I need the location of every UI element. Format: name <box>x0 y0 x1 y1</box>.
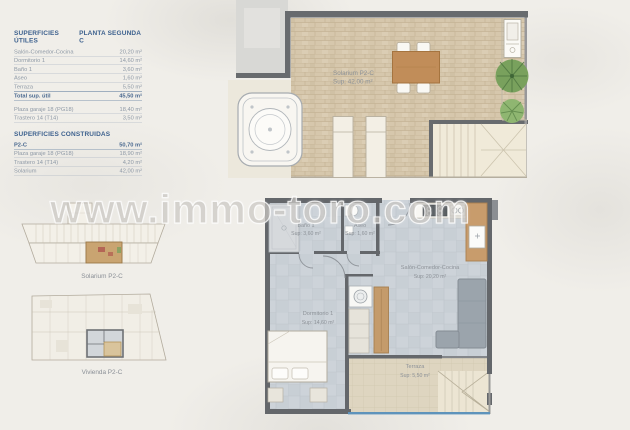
row-value: 42,00 m² <box>120 168 142 174</box>
outdoor-sink-cabinet <box>504 20 521 58</box>
solarium-bottom-edge <box>291 177 527 179</box>
row-label: Plaza garaje 18 (PG18) <box>14 106 74 112</box>
key-plan-solarium: Solarium P2-C <box>13 197 173 287</box>
room-area: Sup: 42,00 m² <box>333 79 373 86</box>
wardrobe <box>374 287 389 353</box>
room-name: Aseo <box>354 223 366 229</box>
washing-machine <box>349 286 372 307</box>
row-value: 50,70 m² <box>119 142 142 148</box>
table-row: Dormitorio 1 14,60 m² <box>14 56 142 65</box>
row-label: Solarium <box>14 168 36 174</box>
room-area: Sup: 1,60 m² <box>345 231 375 237</box>
row-value: 14,60 m² <box>120 58 142 64</box>
neighbor-roof <box>236 0 288 76</box>
row-value: 45,50 m² <box>119 93 142 99</box>
solarium-floor-plan: Solarium P2-C Sup: 42,00 m² <box>225 0 530 186</box>
jacuzzi <box>238 93 302 166</box>
table-row: Baño 1 3,60 m² <box>14 65 142 74</box>
row-value: 5,50 m² <box>123 84 142 90</box>
plant <box>500 99 524 123</box>
table-row: Trastero 14 (T14) 4,20 m² <box>14 158 142 167</box>
utiles-title: SUPERFICIES ÚTILES <box>14 29 79 44</box>
row-label: Baño 1 <box>14 66 32 72</box>
row-label: Salón-Comedor-Cocina <box>14 49 74 55</box>
row-value: 20,20 m² <box>120 49 142 55</box>
row-label: Dormitorio 1 <box>14 58 45 64</box>
surface-tables: SUPERFICIES ÚTILES PLANTA SEGUNDA C Saló… <box>14 29 142 176</box>
room-name: Salón-Comedor-Cocina <box>401 265 460 271</box>
row-value: 4,20 m² <box>123 159 142 165</box>
room-area: Sup: 3,60 m² <box>291 231 321 237</box>
terrace-railing <box>348 412 490 414</box>
row-value: 3,60 m² <box>123 66 142 72</box>
row-label: P2-C <box>14 142 27 148</box>
room-area: Sup: 5,50 m² <box>400 373 430 379</box>
construidas-header: SUPERFICIES CONSTRUIDAS <box>14 130 142 138</box>
sun-lounger <box>366 117 386 178</box>
row-label: Aseo <box>14 75 27 81</box>
table-row: Aseo 1,60 m² <box>14 74 142 83</box>
room-name: Dormitorio 1 <box>303 311 333 317</box>
room-label-solarium: Solarium P2-C Sup: 42,00 m² <box>333 70 374 86</box>
room-area: Sup: 20,20 m² <box>414 274 447 280</box>
row-label: Total sup. útil <box>14 93 51 99</box>
key-plan-label: Vivienda P2-C <box>82 369 123 376</box>
stair-niche-block <box>492 200 498 220</box>
stairs <box>433 124 527 177</box>
table-row: Trastero 14 (T14) 3,50 m² <box>14 114 142 123</box>
row-value: 18,90 m² <box>120 151 142 157</box>
row-label: Plaza garaje 18 (PG18) <box>14 151 74 157</box>
table-row: Terraza 5,50 m² <box>14 83 142 92</box>
sun-lounger <box>333 117 353 178</box>
terrace-right-edge <box>489 374 491 414</box>
highlighted-unit <box>87 330 123 357</box>
row-value: 3,50 m² <box>123 115 142 121</box>
kitchen-tall-units <box>466 203 487 261</box>
floor-plan-sheet: SUPERFICIES ÚTILES PLANTA SEGUNDA C Saló… <box>0 0 630 430</box>
room-area: Sup: 14,60 m² <box>302 320 335 326</box>
terrace-window <box>442 356 487 358</box>
kitchen-counter <box>414 203 466 218</box>
table-row: Plaza garaje 18 (PG18) 18,90 m² <box>14 149 142 158</box>
laundry-cabinet <box>349 309 369 353</box>
table-row-total: Total sup. útil 45,50 m² <box>14 91 142 100</box>
room-name: Baño 1 <box>297 223 314 229</box>
construidas-title: SUPERFICIES CONSTRUIDAS <box>14 130 110 138</box>
row-label: Trastero 14 (T14) <box>14 115 58 121</box>
room-name: Solarium P2-C <box>333 70 374 77</box>
planta-title: PLANTA SEGUNDA C <box>79 29 142 44</box>
bed <box>268 331 327 382</box>
row-label: Trastero 14 (T14) <box>14 159 58 165</box>
key-plan-label: Solarium P2-C <box>81 273 123 280</box>
row-value: 18,40 m² <box>120 106 142 112</box>
highlighted-unit <box>86 242 122 263</box>
apartment-floor-plan: Baño 1 Sup: 3,60 m² Aseo Sup: 1,60 m² Sa… <box>262 193 498 421</box>
table-row: P2-C 50,70 m² <box>14 141 142 150</box>
table-row: Plaza garaje 18 (PG18) 18,40 m² <box>14 105 142 114</box>
table-row: Salón-Comedor-Cocina 20,20 m² <box>14 48 142 57</box>
row-value: 1,60 m² <box>123 75 142 81</box>
table-row: Solarium 42,00 m² <box>14 167 142 176</box>
utiles-header: SUPERFICIES ÚTILES PLANTA SEGUNDA C <box>14 29 142 44</box>
row-label: Terraza <box>14 84 33 90</box>
key-plan-vivienda: Vivienda P2-C <box>8 290 178 382</box>
room-name: Terraza <box>406 364 426 370</box>
shower <box>269 204 299 252</box>
terrace-stairs <box>438 371 490 412</box>
